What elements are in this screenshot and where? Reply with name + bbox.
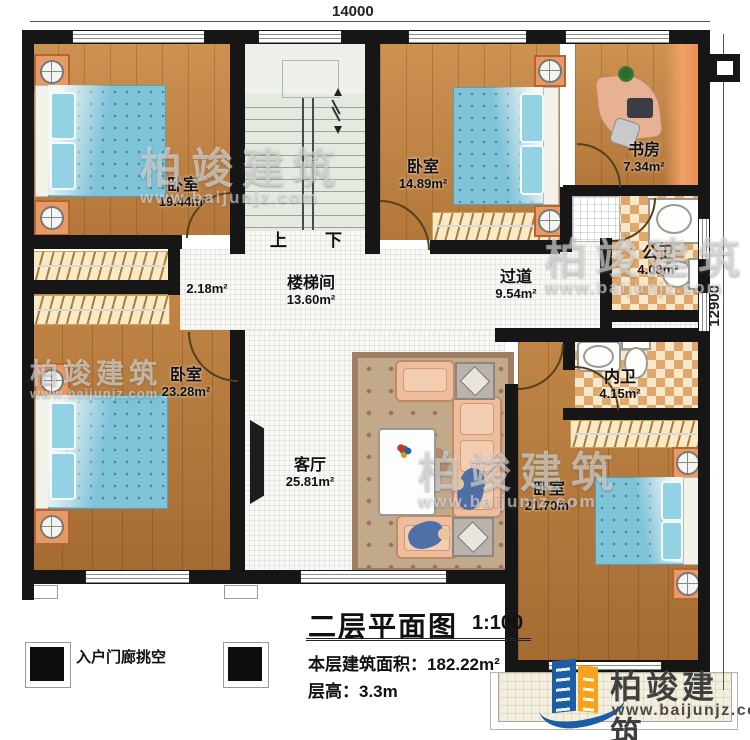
stair-up-label: 上 [270, 226, 287, 251]
floor-height-value: 3.3m [359, 682, 398, 701]
stair-arrow-icon [334, 126, 342, 134]
floor-area-line: 本层建筑面积：182.22m² [308, 650, 500, 675]
pillow [520, 145, 544, 195]
window [258, 31, 342, 43]
porch-label: 入户门廊挑空 [76, 646, 166, 667]
bed-headboard [543, 87, 559, 205]
room-label-hallway: 过道9.54m² [495, 270, 536, 302]
wall [22, 30, 34, 600]
sink-icon [583, 345, 614, 368]
bed-headboard [683, 477, 699, 565]
lamp-icon [40, 369, 64, 393]
pillow [50, 92, 76, 140]
person-head [452, 478, 464, 490]
dimension-line-right [723, 34, 724, 690]
lamp-icon [676, 451, 700, 475]
lamp-icon [40, 515, 64, 539]
window [72, 31, 205, 43]
room-label-stairwell: 楼梯间13.60m² [287, 276, 335, 308]
room-label-bedroom-se: 卧室21.70m² [525, 482, 573, 514]
wardrobe [33, 251, 170, 281]
wall [32, 280, 170, 294]
wall [560, 187, 572, 252]
tv-icon [250, 420, 264, 504]
stair-down-label: 下 [325, 226, 342, 251]
end-table [455, 362, 495, 400]
porch-column [228, 647, 262, 681]
stair-arrow-icon [334, 88, 342, 96]
monitor-icon [627, 98, 653, 118]
wall [32, 235, 182, 249]
room-label-bedroom-nw: 卧室19.44m² [159, 178, 207, 210]
window [408, 31, 527, 43]
study-wall-glow [664, 44, 698, 185]
dimension-line-top [30, 21, 710, 22]
window [85, 571, 190, 583]
armchair [395, 360, 455, 402]
wardrobe [570, 420, 700, 448]
stair-railing [302, 98, 314, 230]
wall [563, 342, 575, 370]
wall [600, 238, 612, 330]
floor-plan: 14000 12900 上 下 [0, 0, 750, 740]
lamp-icon [40, 206, 64, 230]
nightstand [34, 509, 70, 545]
room-label-bedroom-n: 卧室14.89m² [399, 160, 447, 192]
floor-area-value: 182.22m² [427, 655, 500, 674]
room-label-bedroom-sw: 卧室23.28m² [162, 368, 210, 400]
room-label-nook: 2.18m² [186, 281, 227, 297]
dimension-top-label: 14000 [332, 3, 374, 20]
pillow [520, 93, 544, 143]
nightstand [34, 363, 70, 399]
floor-area-label: 本层建筑面积： [308, 655, 427, 674]
room-label-ensuite-bath: 内卫4.15m² [599, 370, 640, 402]
plant-icon [618, 66, 634, 82]
chimney [710, 54, 740, 82]
wall [365, 44, 380, 254]
wall [430, 240, 560, 254]
flower-vase [394, 440, 414, 460]
porch-column [30, 647, 64, 681]
wall [495, 328, 710, 342]
logo-brand: 柏竣建筑 [610, 662, 750, 740]
dimension-right-label: 12900 [706, 285, 723, 327]
nightstand [534, 55, 566, 87]
person-head [438, 528, 450, 540]
room-label-study: 书房7.34m² [623, 143, 664, 175]
pillow [661, 481, 683, 521]
pillow [50, 452, 76, 500]
title-underline [306, 622, 531, 641]
wardrobe [33, 295, 170, 325]
sink-icon [656, 204, 692, 234]
column-marker [224, 585, 258, 599]
nightstand [34, 200, 70, 236]
lamp-icon [538, 59, 562, 83]
stair-landing-outline [282, 60, 339, 98]
room-label-public-bath: 公卫4.08m² [637, 246, 678, 278]
logo-url: www.baijunjz.com [612, 702, 750, 720]
end-table [452, 517, 494, 557]
window [565, 31, 670, 43]
pillow [50, 402, 76, 450]
window [300, 571, 447, 583]
room-label-living-room: 客厅25.81m² [286, 458, 334, 490]
floor-height-line: 层高：3.3m [308, 677, 398, 702]
wall [230, 44, 245, 254]
pillow [50, 142, 76, 190]
stair-landing-floor [245, 230, 365, 252]
window [699, 218, 709, 260]
pillow [661, 521, 683, 561]
wall [612, 310, 698, 322]
wall [698, 30, 710, 672]
lamp-icon [40, 60, 64, 84]
lamp-icon [676, 572, 700, 596]
lamp-icon [538, 209, 562, 233]
floor-height-label: 层高： [308, 682, 359, 701]
